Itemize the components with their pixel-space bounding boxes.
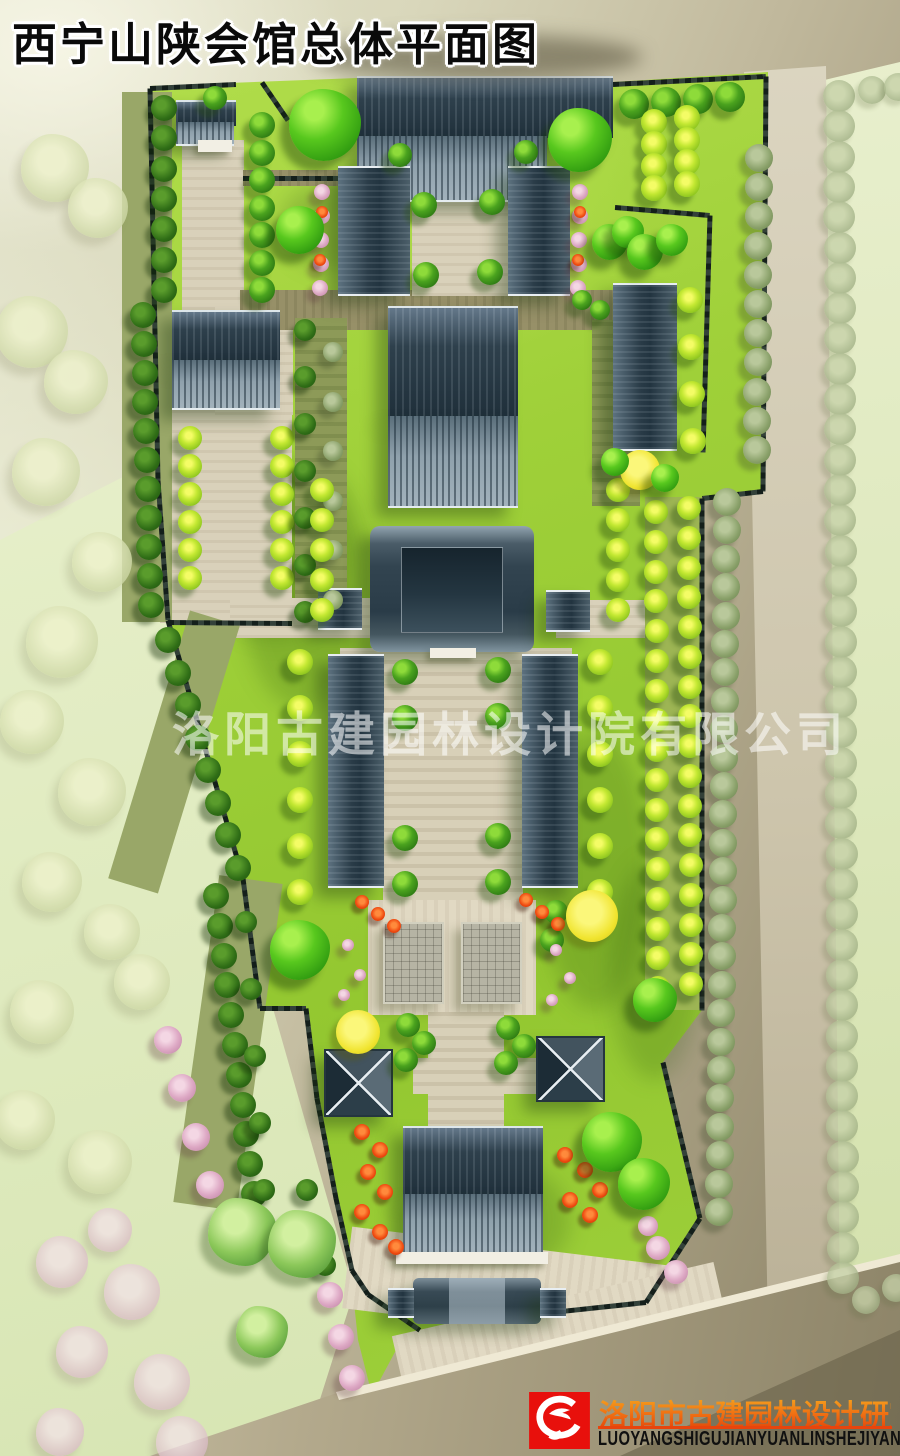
- tree-f: [826, 1080, 858, 1112]
- tree-d: [215, 822, 241, 848]
- tree-r: [557, 1147, 573, 1163]
- tree-p: [354, 969, 366, 981]
- tree-d: [253, 1179, 275, 1201]
- tree-d: [132, 389, 158, 415]
- tree-b: [633, 978, 677, 1022]
- tree-l: [310, 478, 334, 502]
- tree-l: [679, 913, 703, 937]
- tree-r: [562, 1192, 578, 1208]
- tree-d: [225, 855, 251, 881]
- tree-s: [706, 1141, 734, 1169]
- tree-l: [677, 556, 701, 580]
- tree-r: [372, 1142, 388, 1158]
- tree-l: [606, 568, 630, 592]
- tree-l: [644, 589, 668, 613]
- tree-g: [411, 192, 437, 218]
- tree-l: [270, 538, 294, 562]
- tree-d: [135, 476, 161, 502]
- tree-l: [646, 857, 670, 881]
- tree-f: [852, 1286, 880, 1314]
- tree-r: [354, 1204, 370, 1220]
- tree-l: [677, 496, 701, 520]
- tree-s: [709, 886, 737, 914]
- tree-p: [338, 989, 350, 1001]
- tree-cp: [36, 1408, 84, 1456]
- tree-d: [226, 1062, 252, 1088]
- tree-p: [317, 1282, 343, 1308]
- tree-l: [270, 510, 294, 534]
- tree-l: [270, 454, 294, 478]
- tree-s: [744, 319, 772, 347]
- tree-g: [512, 1034, 536, 1058]
- tree-g: [715, 82, 745, 112]
- tree-p: [339, 1365, 365, 1391]
- tree-d: [151, 247, 177, 273]
- tree-b: [548, 108, 612, 172]
- tree-f: [824, 413, 856, 445]
- tree-s: [708, 914, 736, 942]
- tree-d: [134, 447, 160, 473]
- tree-s: [707, 1056, 735, 1084]
- tree-cp: [56, 1326, 108, 1378]
- tree-g: [479, 189, 505, 215]
- tree-d: [130, 302, 156, 328]
- tree-d: [211, 943, 237, 969]
- tree-d: [240, 978, 262, 1000]
- tree-d: [294, 413, 316, 435]
- tree-c: [12, 438, 80, 506]
- tree-l: [644, 560, 668, 584]
- tree-b: [656, 224, 688, 256]
- tree-g: [392, 871, 418, 897]
- tree-f: [825, 626, 857, 658]
- tree-f: [826, 1050, 858, 1082]
- tree-g: [249, 140, 275, 166]
- tree-f: [827, 1262, 859, 1294]
- tree-l: [679, 883, 703, 907]
- tree-d: [155, 627, 181, 653]
- tree-g: [388, 143, 412, 167]
- tree-d: [133, 418, 159, 444]
- tree-s: [706, 1113, 734, 1141]
- tree-c: [114, 954, 170, 1010]
- tree-l: [679, 381, 705, 407]
- tree-c: [10, 980, 74, 1044]
- tree-d: [165, 660, 191, 686]
- tree-d: [136, 505, 162, 531]
- tree-s: [713, 488, 741, 516]
- tree-p: [638, 1216, 658, 1236]
- tree-f: [824, 262, 856, 294]
- tree-h: [208, 1198, 276, 1266]
- tree-s: [707, 999, 735, 1027]
- tree-f: [824, 504, 856, 536]
- tree-c: [0, 1090, 55, 1150]
- tree-c: [84, 904, 140, 960]
- tree-l: [680, 428, 706, 454]
- tree-f: [826, 838, 858, 870]
- tree-l: [677, 585, 701, 609]
- tree-s: [745, 173, 773, 201]
- tree-f: [882, 1274, 900, 1302]
- tree-d: [151, 186, 177, 212]
- tree-f: [825, 565, 857, 597]
- tree-p: [328, 1324, 354, 1350]
- tree-l: [178, 510, 202, 534]
- tree-g: [485, 657, 511, 683]
- tree-d: [249, 1112, 271, 1134]
- tree-s: [744, 290, 772, 318]
- tree-l: [287, 833, 313, 859]
- tree-s: [705, 1198, 733, 1226]
- tree-b: [651, 464, 679, 492]
- tree-r: [551, 917, 565, 931]
- tree-d: [294, 319, 316, 341]
- tree-f: [823, 141, 855, 173]
- tree-c: [68, 1130, 132, 1194]
- tree-l: [678, 334, 704, 360]
- tree-l: [310, 538, 334, 562]
- tree-l: [645, 827, 669, 851]
- tree-f: [827, 1232, 859, 1264]
- tree-l: [310, 508, 334, 532]
- tree-r: [592, 1182, 608, 1198]
- tree-c: [0, 690, 64, 754]
- tree-f: [823, 201, 855, 233]
- tree-g: [485, 823, 511, 849]
- tree-s: [712, 545, 740, 573]
- tree-s: [711, 658, 739, 686]
- tree-g: [394, 1048, 418, 1072]
- tree-f: [827, 1201, 859, 1233]
- tree-s: [713, 516, 741, 544]
- tree-r: [372, 1224, 388, 1240]
- tree-p: [182, 1123, 210, 1151]
- tree-d: [230, 1092, 256, 1118]
- tree-g: [249, 195, 275, 221]
- tree-s: [743, 407, 771, 435]
- tree-cp: [156, 1416, 208, 1456]
- tree-l: [678, 823, 702, 847]
- tree-g: [413, 262, 439, 288]
- tree-h: [236, 1306, 288, 1358]
- tree-l: [678, 764, 702, 788]
- tree-l: [178, 566, 202, 590]
- tree-s: [708, 971, 736, 999]
- tree-f: [826, 1110, 858, 1142]
- tree-r: [574, 206, 586, 218]
- tree-l: [587, 787, 613, 813]
- tree-r: [572, 254, 584, 266]
- tree-s: [744, 232, 772, 260]
- tree-l: [678, 675, 702, 699]
- tree-p: [550, 944, 562, 956]
- tree-p: [342, 939, 354, 951]
- tree-r: [360, 1164, 376, 1180]
- tree-d: [214, 972, 240, 998]
- tree-h: [268, 1210, 336, 1278]
- tree-l: [645, 768, 669, 792]
- tree-s: [708, 942, 736, 970]
- tree-p: [664, 1260, 688, 1284]
- tree-s: [709, 857, 737, 885]
- tree-f: [826, 1020, 858, 1052]
- tree-s: [710, 772, 738, 800]
- tree-c: [22, 852, 82, 912]
- tree-f: [884, 73, 900, 101]
- tree-l: [679, 942, 703, 966]
- tree-d: [151, 277, 177, 303]
- tree-d: [235, 911, 257, 933]
- tree-f: [824, 353, 856, 385]
- tree-l: [646, 887, 670, 911]
- tree-g: [249, 277, 275, 303]
- tree-g: [514, 140, 538, 164]
- tree-l: [270, 426, 294, 450]
- tree-g: [485, 869, 511, 895]
- publisher-block: 洛阳市古建园林设计研究院 LUOYANGSHIGUJIANYUANLINSHEJ…: [528, 1390, 894, 1452]
- tree-cp: [88, 1208, 132, 1252]
- tree-f: [825, 595, 857, 627]
- tree-s: [744, 261, 772, 289]
- tree-s: [709, 829, 737, 857]
- tree-g: [249, 112, 275, 138]
- tree-f: [827, 1141, 859, 1173]
- tree-l: [287, 787, 313, 813]
- tree-d: [151, 216, 177, 242]
- tree-p: [572, 184, 588, 200]
- tree-y: [566, 890, 618, 942]
- tree-d: [203, 883, 229, 909]
- tree-l: [270, 566, 294, 590]
- tree-l: [646, 946, 670, 970]
- tree-b: [289, 89, 361, 161]
- tree-f: [825, 535, 857, 567]
- tree-d: [294, 366, 316, 388]
- tree-l: [587, 649, 613, 675]
- tree-c: [26, 606, 98, 678]
- tree-r: [388, 1239, 404, 1255]
- tree-c: [68, 178, 128, 238]
- tree-f: [827, 1171, 859, 1203]
- tree-r: [519, 893, 533, 907]
- tree-r: [377, 1184, 393, 1200]
- tree-r: [387, 919, 401, 933]
- tree-r: [535, 905, 549, 919]
- tree-f: [826, 898, 858, 930]
- tree-l: [178, 538, 202, 562]
- tree-g: [477, 259, 503, 285]
- tree-l: [178, 454, 202, 478]
- tree-c: [58, 758, 126, 826]
- tree-l: [679, 972, 703, 996]
- tree-r: [371, 907, 385, 921]
- tree-s: [744, 348, 772, 376]
- tree-d: [244, 1045, 266, 1067]
- tree-g: [392, 659, 418, 685]
- tree-s: [705, 1170, 733, 1198]
- tree-f: [825, 777, 857, 809]
- tree-p: [564, 972, 576, 984]
- tree-l: [310, 568, 334, 592]
- tree-f: [826, 989, 858, 1021]
- tree-f: [823, 80, 855, 112]
- tree-p: [646, 1236, 670, 1260]
- tree-g: [249, 167, 275, 193]
- tree-d: [296, 1179, 318, 1201]
- tree-s: [745, 202, 773, 230]
- tree-p: [168, 1074, 196, 1102]
- tree-s: [712, 602, 740, 630]
- tree-d: [137, 563, 163, 589]
- tree-f: [825, 807, 857, 839]
- tree-l: [644, 500, 668, 524]
- tree-f: [826, 868, 858, 900]
- tree-l: [641, 175, 667, 201]
- tree-l: [677, 526, 701, 550]
- tree-s: [711, 630, 739, 658]
- tree-f: [824, 232, 856, 264]
- tree-l: [287, 879, 313, 905]
- tree-c: [72, 532, 132, 592]
- tree-f: [824, 444, 856, 476]
- tree-f: [825, 656, 857, 688]
- tree-l: [645, 798, 669, 822]
- tree-s: [709, 800, 737, 828]
- tree-c: [44, 350, 108, 414]
- tree-d: [151, 156, 177, 182]
- tree-cp: [104, 1264, 160, 1320]
- tree-g: [203, 86, 227, 110]
- tree-l: [645, 619, 669, 643]
- tree-l: [679, 853, 703, 877]
- tree-l: [678, 794, 702, 818]
- tree-d: [138, 592, 164, 618]
- tree-f: [824, 474, 856, 506]
- tree-l: [587, 833, 613, 859]
- page-title: 西宁山陕会馆总体平面图: [12, 8, 572, 73]
- tree-p: [154, 1026, 182, 1054]
- publisher-logo-icon: [528, 1392, 591, 1449]
- tree-s: [323, 441, 343, 461]
- tree-d: [131, 331, 157, 357]
- tree-r: [354, 1124, 370, 1140]
- site-plan-canvas: 西宁山陕会馆总体平面图 洛阳古建园林设计院有限公司 洛阳市古建园林设计研究院 L…: [0, 0, 900, 1456]
- tree-f: [824, 383, 856, 415]
- publisher-name-latin: LUOYANGSHIGUJIANYUANLINSHEJIYANJIUYUAN: [598, 1428, 900, 1451]
- tree-f: [858, 76, 886, 104]
- tree-s: [743, 378, 771, 406]
- tree-d: [151, 125, 177, 151]
- tree-f: [824, 292, 856, 324]
- tree-r: [355, 895, 369, 909]
- tree-l: [606, 508, 630, 532]
- tree-f: [823, 171, 855, 203]
- tree-s: [323, 342, 343, 362]
- tree-l: [674, 171, 700, 197]
- tree-l: [644, 530, 668, 554]
- tree-g: [590, 300, 610, 320]
- tree-r: [577, 1162, 593, 1178]
- tree-p: [196, 1171, 224, 1199]
- tree-b: [270, 920, 330, 980]
- tree-l: [606, 538, 630, 562]
- tree-l: [645, 649, 669, 673]
- tree-s: [743, 436, 771, 464]
- tree-d: [237, 1151, 263, 1177]
- tree-d: [294, 460, 316, 482]
- tree-l: [646, 917, 670, 941]
- tree-p: [546, 994, 558, 1006]
- tree-p: [571, 232, 587, 248]
- tree-s: [706, 1084, 734, 1112]
- tree-p: [314, 184, 330, 200]
- tree-d: [207, 913, 233, 939]
- tree-g: [392, 825, 418, 851]
- tree-cp: [36, 1236, 88, 1288]
- tree-g: [412, 1031, 436, 1055]
- tree-l: [178, 426, 202, 450]
- tree-d: [151, 95, 177, 121]
- tree-d: [132, 360, 158, 386]
- tree-l: [678, 645, 702, 669]
- tree-s: [745, 144, 773, 172]
- tree-f: [823, 110, 855, 142]
- tree-b: [618, 1158, 670, 1210]
- tree-l: [606, 598, 630, 622]
- tree-f: [824, 322, 856, 354]
- tree-s: [323, 392, 343, 412]
- tree-f: [826, 959, 858, 991]
- tree-l: [310, 598, 334, 622]
- tree-d: [136, 534, 162, 560]
- tree-r: [582, 1207, 598, 1223]
- tree-l: [178, 482, 202, 506]
- tree-s: [707, 1028, 735, 1056]
- tree-l: [677, 287, 703, 313]
- tree-g: [494, 1051, 518, 1075]
- watermark-text: 洛阳古建园林设计院有限公司: [172, 696, 752, 765]
- tree-l: [287, 649, 313, 675]
- tree-l: [678, 615, 702, 639]
- tree-l: [270, 482, 294, 506]
- tree-r: [314, 254, 326, 266]
- tree-d: [218, 1002, 244, 1028]
- tree-s: [712, 573, 740, 601]
- tree-d: [205, 790, 231, 816]
- tree-y: [336, 1010, 380, 1054]
- tree-cp: [134, 1354, 190, 1410]
- tree-g: [249, 250, 275, 276]
- tree-g: [572, 290, 592, 310]
- tree-g: [249, 222, 275, 248]
- tree-p: [312, 280, 328, 296]
- tree-f: [826, 929, 858, 961]
